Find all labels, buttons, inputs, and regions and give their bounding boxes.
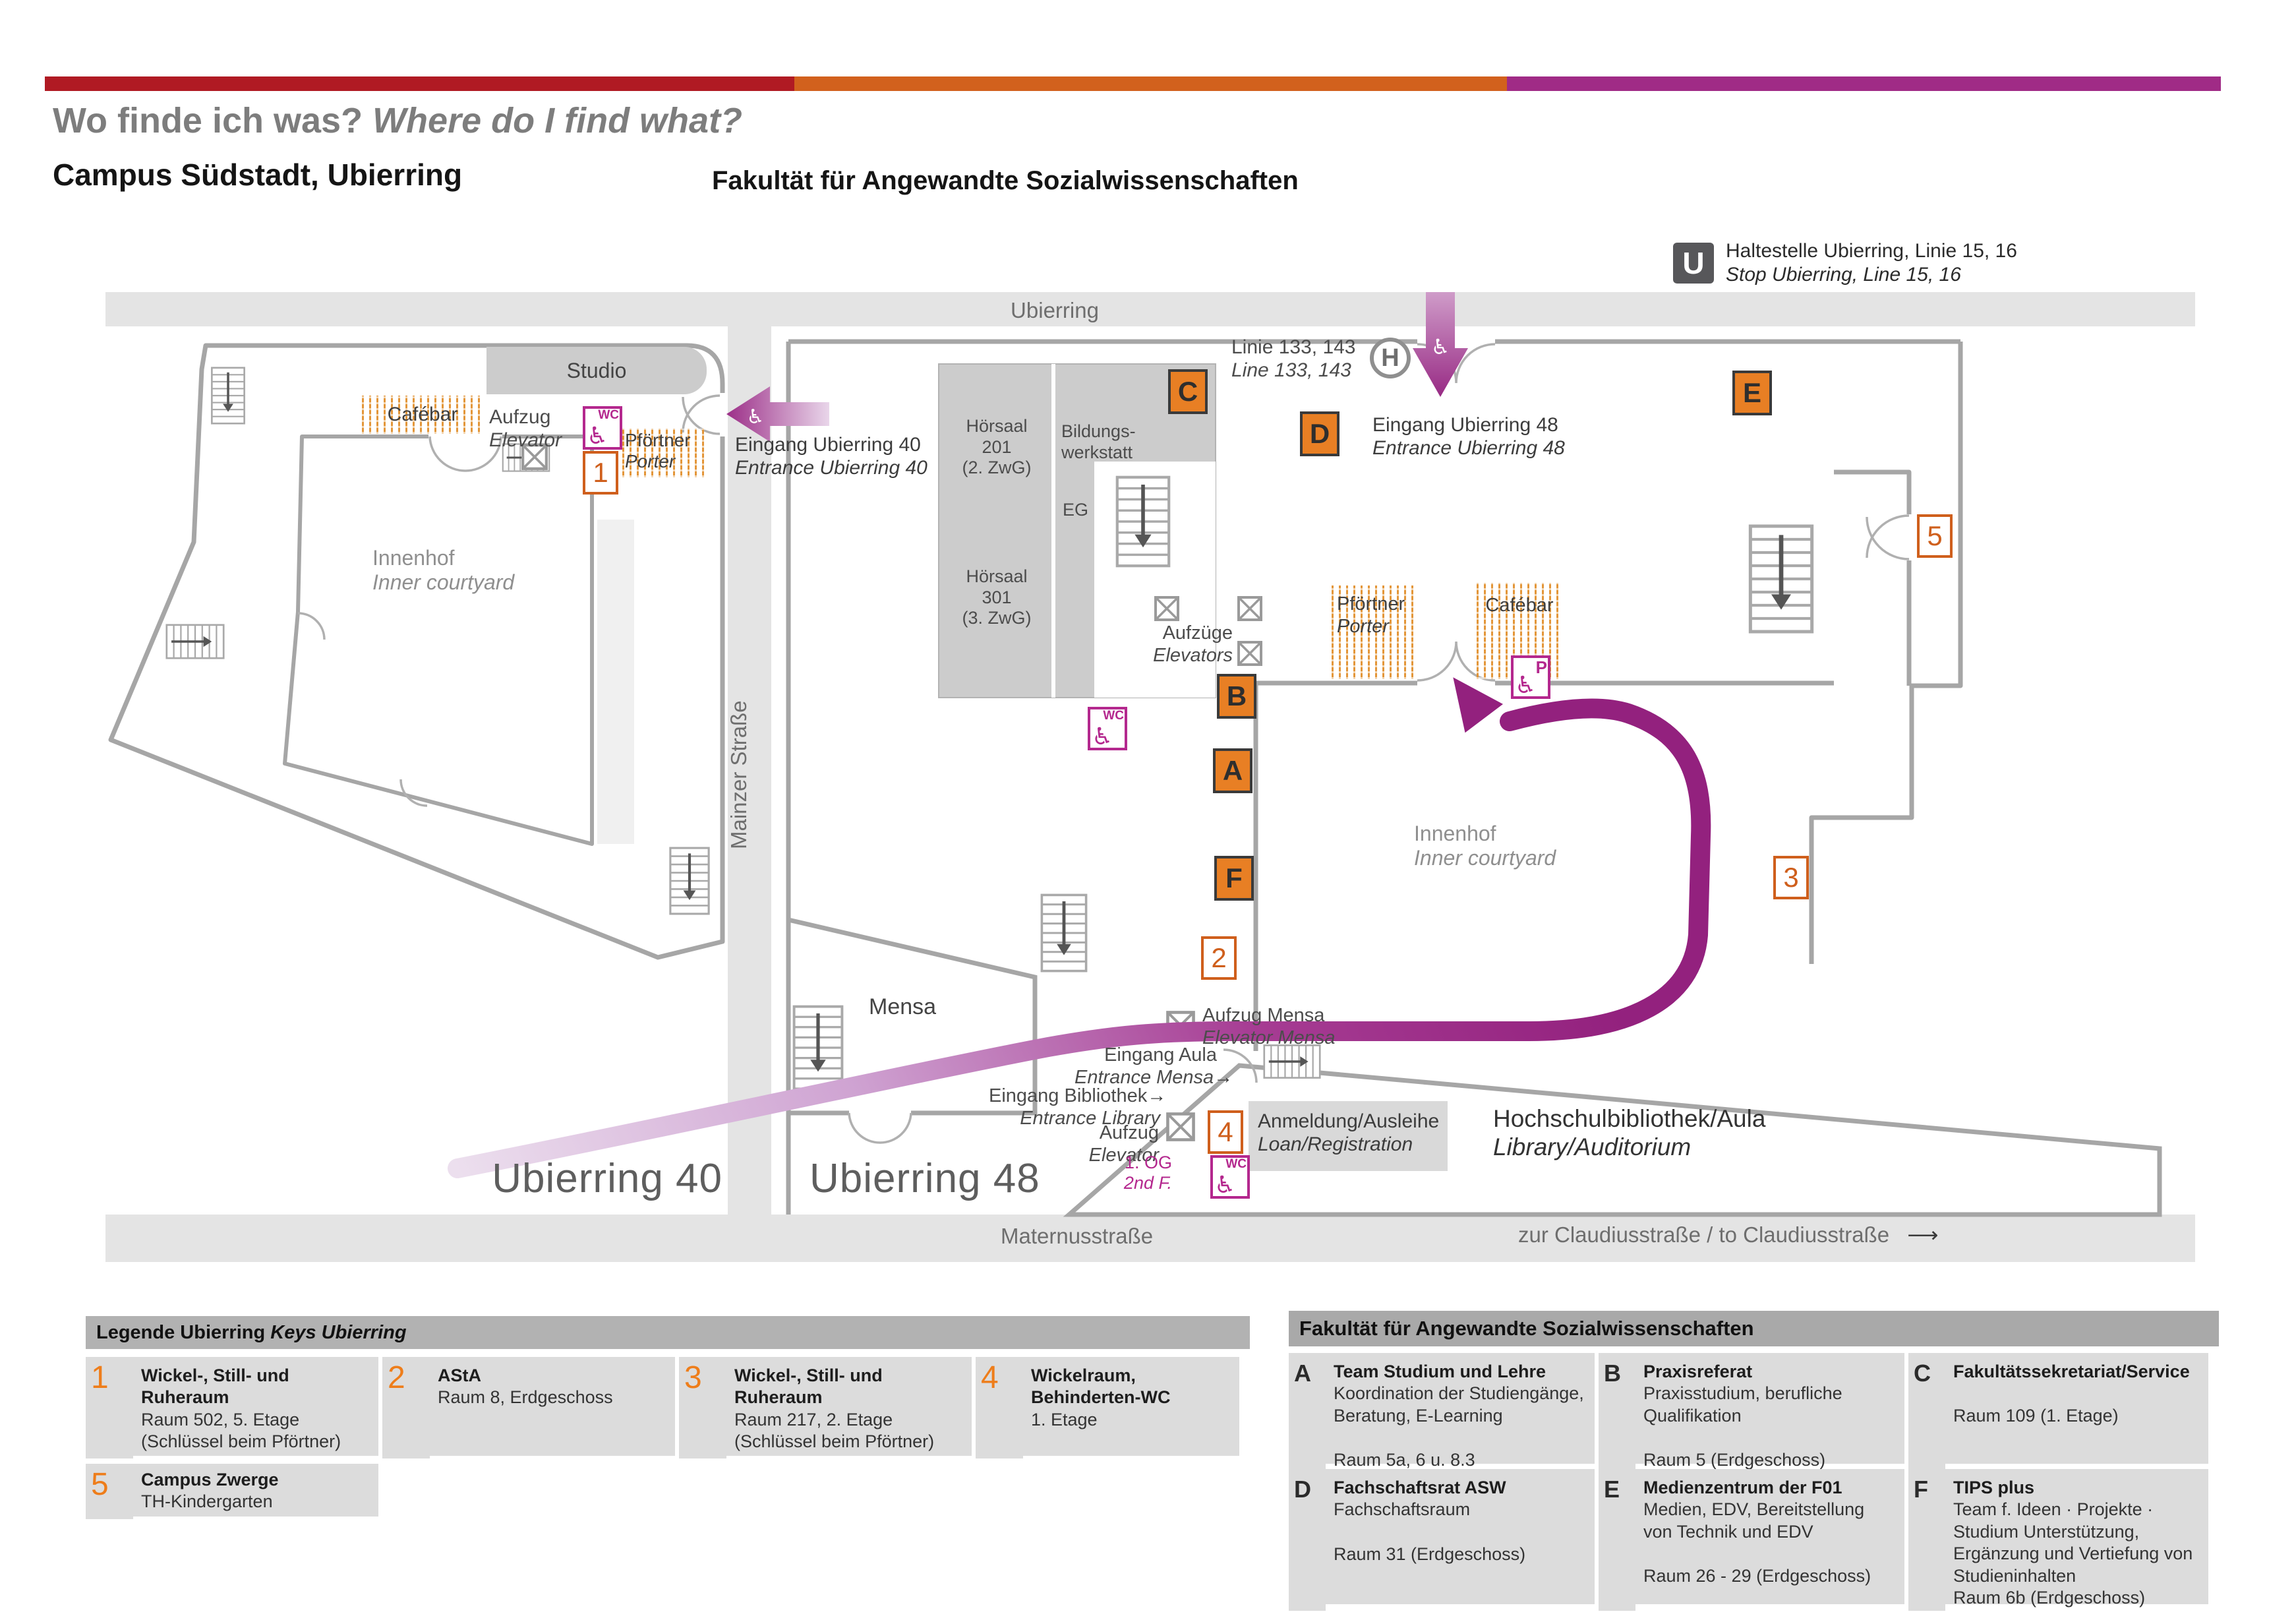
courtyard-48-label: Innenhof Inner courtyard <box>1414 822 1556 870</box>
hoersaal-301-label: Hörsaal 301 (3. ZwG) <box>943 546 1051 628</box>
legend-panel: Legende Ubierring Keys Ubierring 1 Wicke… <box>86 1316 1239 1520</box>
marker-3: 3 <box>1773 856 1809 899</box>
faculty-item-e: Medienzentrum der F01 Medien, EDV, Berei… <box>1634 1469 1904 1604</box>
stairs-icon <box>1264 1045 1320 1077</box>
legend-key-4: 4 <box>976 1357 1023 1458</box>
studio-room: Studio <box>486 347 707 394</box>
faculty-key-d: D <box>1289 1469 1326 1611</box>
accessible-parking-icon: ♿P <box>1511 655 1550 699</box>
wc-library-icon: ♿WC <box>1210 1155 1250 1199</box>
arrow-right-icon: → <box>1147 1085 1166 1106</box>
faculty-panel-heading: Fakultät für Angewandte Sozialwissenscha… <box>1289 1311 2219 1346</box>
street-label-maternus: Maternusstraße <box>1001 1224 1153 1249</box>
legend-item-5: Campus Zwerge TH-Kindergarten <box>132 1464 378 1517</box>
building-label-u48: Ubierring 48 <box>809 1155 1040 1202</box>
wheelchair-icon: ♿ <box>747 405 765 429</box>
entrance-aula-label: Eingang Aula Entrance Mensa→ <box>1074 1044 1217 1089</box>
bildungswerkstatt-label: Bildungs- werkstatt <box>1061 401 1136 463</box>
elevator-mensa-label: Aufzug Mensa Elevator Mensa <box>1202 1005 1336 1049</box>
marker-e: E <box>1732 371 1772 415</box>
stairs-icon <box>670 848 709 914</box>
faculty-key-f: F <box>1908 1469 1945 1611</box>
bus-line-label: Linie 133, 143 Line 133, 143 <box>1231 336 1356 382</box>
marker-f: F <box>1214 856 1254 901</box>
eg-label: EG <box>1063 500 1088 520</box>
wheelchair-icon: ♿ <box>1481 731 1502 758</box>
legend-key-5: 5 <box>86 1464 133 1519</box>
faculty-item-b: Praxisreferat Praxisstudium, berufliche … <box>1634 1353 1904 1464</box>
u40-gray-strip <box>597 520 634 844</box>
faculty-key-b: B <box>1599 1353 1635 1470</box>
arrow-right-icon: ⟶ <box>1907 1222 1938 1247</box>
elevator-icon <box>1167 1114 1193 1139</box>
faculty-panel: Fakultät für Angewandte Sozialwissenscha… <box>1289 1311 2208 1609</box>
stairs-icon <box>167 625 223 658</box>
elevator-40-label: Aufzug Elevator <box>489 406 562 452</box>
hoersaal-201-label: Hörsaal 201 (2. ZwG) <box>943 396 1051 478</box>
elevator-icon <box>1156 597 1178 620</box>
legend-item-4: Wickelraum, Behinderten-WC 1. Etage <box>1022 1357 1239 1456</box>
arrow-right-icon: → <box>1214 1067 1233 1088</box>
stairs-icon <box>794 1007 842 1089</box>
faculty-item-d: Fachschaftsrat ASW Fachschaftsraum Raum … <box>1324 1469 1595 1604</box>
elevator-icon <box>1239 597 1261 620</box>
stairs-icon <box>212 368 244 423</box>
wc-40-icon: ♿WC <box>583 406 622 450</box>
cafebar-40-label: Cafébar <box>362 404 483 427</box>
legend-heading: Legende Ubierring Keys Ubierring <box>86 1316 1250 1349</box>
faculty-item-a: Team Studium und Lehre Koordination der … <box>1324 1353 1595 1464</box>
cafebar-48-label: Cafébar <box>1477 595 1562 617</box>
elevators-48-label: Aufzüge Elevators <box>1135 622 1233 667</box>
marker-1: 1 <box>583 451 618 495</box>
marker-b: B <box>1217 674 1256 719</box>
porter-48-label: Pförtner Porter <box>1337 593 1405 638</box>
faculty-item-c: Fakultätssekretariat/Service Raum 109 (1… <box>1944 1353 2208 1464</box>
legend-key-1: 1 <box>86 1357 133 1458</box>
floor-note-label: 1. OG 2nd F. <box>1114 1153 1172 1194</box>
building-label-u40: Ubierring 40 <box>455 1155 722 1202</box>
legend-item-2: AStA Raum 8, Erdgeschoss <box>428 1357 675 1456</box>
entrance-48-label: Eingang Ubierring 48 Entrance Ubierring … <box>1372 414 1565 460</box>
faculty-key-e: E <box>1599 1469 1635 1611</box>
faculty-key-a: A <box>1289 1353 1326 1470</box>
legend-key-2: 2 <box>382 1357 430 1458</box>
faculty-key-c: C <box>1908 1353 1945 1470</box>
legend-item-1: Wickel-, Still- und Ruheraum Raum 502, 5… <box>132 1357 378 1456</box>
library-label: Hochschulbibliothek/Aula Library/Auditor… <box>1493 1105 1765 1162</box>
campus-map-page: Wo finde ich was? Where do I find what? … <box>0 0 2296 1622</box>
stairs-icon <box>1042 895 1086 971</box>
marker-4: 4 <box>1208 1110 1243 1154</box>
marker-a: A <box>1213 748 1252 793</box>
marker-2: 2 <box>1201 936 1237 980</box>
marker-5: 5 <box>1917 514 1953 558</box>
entrance-40-label: Eingang Ubierring 40 Entrance Ubierring … <box>735 434 927 480</box>
wheelchair-icon: ♿ <box>1431 334 1450 359</box>
faculty-item-f: TIPS plus Team f. Ideen · Projekte · Stu… <box>1944 1469 2208 1604</box>
porter-40-label: Pförtner Porter <box>625 430 691 473</box>
street-label-ubierring: Ubierring <box>923 298 1187 323</box>
legend-item-3: Wickel-, Still- und Ruheraum Raum 217, 2… <box>725 1357 972 1456</box>
stairs-icon <box>1750 526 1811 632</box>
street-label-mainzer: Mainzer Straße <box>726 633 773 916</box>
street-label-claudius: zur Claudiusstraße / to Claudiusstraße ⟶ <box>1518 1222 1939 1247</box>
mensa-label: Mensa <box>869 994 936 1020</box>
anmeldung-label: Anmeldung/Ausleihe Loan/Registration <box>1258 1110 1439 1156</box>
marker-c: C <box>1168 369 1208 414</box>
marker-d: D <box>1300 411 1339 456</box>
stairs-icon <box>1117 477 1169 566</box>
bus-stop-icon: H <box>1370 338 1411 378</box>
legend-key-3: 3 <box>679 1357 726 1458</box>
wc-48-icon: ♿WC <box>1088 707 1127 750</box>
courtyard-40-label: Innenhof Inner courtyard <box>372 546 514 595</box>
elevator-icon <box>1239 642 1261 665</box>
